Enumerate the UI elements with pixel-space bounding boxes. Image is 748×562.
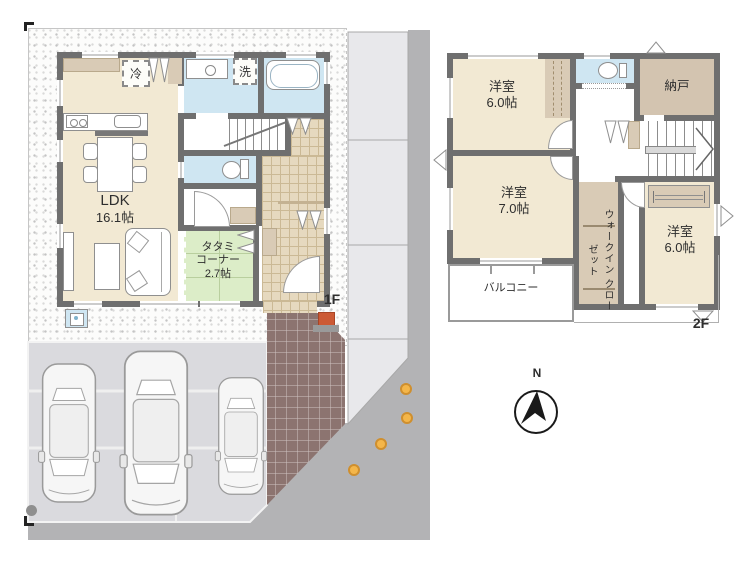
eave-outline	[718, 255, 719, 322]
sofa-pillow	[127, 231, 149, 253]
double-door-icon	[296, 210, 322, 230]
closet-se	[648, 185, 710, 208]
stove	[66, 115, 88, 128]
room-name: 洋室	[470, 79, 534, 95]
walk-in-closet-label: ウォークイン クローゼット	[575, 208, 615, 312]
vanity-sink	[186, 59, 228, 79]
dining-chair	[83, 166, 98, 183]
car-top-view	[119, 349, 193, 517]
window	[178, 162, 184, 178]
car-top-view	[213, 376, 269, 496]
corner-mark-nw2	[24, 22, 27, 31]
window	[57, 140, 63, 162]
genkan-step-edge	[278, 201, 324, 204]
stairs-railing	[645, 146, 701, 154]
window	[324, 208, 330, 234]
stairs-direction-arrow	[694, 126, 716, 172]
dining-chair	[83, 143, 98, 160]
dining-chair	[132, 166, 147, 183]
car-top-view	[38, 362, 100, 504]
sliding-door-opening	[582, 83, 626, 89]
dining-table	[97, 137, 133, 192]
room-name: コーナー	[185, 254, 251, 267]
vanity-bowl	[205, 65, 216, 76]
outdoor-faucet	[65, 309, 88, 328]
sofa-pillow	[126, 270, 148, 292]
refrigerator-label: 冷	[130, 65, 142, 82]
window-swing-icon	[720, 205, 734, 227]
bedroom-se-label: 洋室 6.0帖	[648, 224, 712, 256]
window	[196, 52, 234, 58]
tv-board	[63, 232, 74, 291]
bedroom-sw-label: 洋室 7.0帖	[482, 185, 546, 217]
pantry-niche	[168, 58, 182, 84]
kitchen-sink	[114, 115, 141, 128]
closet-nw	[545, 59, 570, 118]
closet-rod	[655, 195, 703, 196]
rod-bracket	[704, 191, 705, 203]
wall-segment	[258, 58, 264, 113]
window-swing-icon	[646, 41, 666, 54]
window	[324, 62, 330, 84]
room-name: LDK	[73, 192, 157, 210]
ground-light-dot	[375, 438, 387, 450]
toilet-bowl-2f	[598, 62, 618, 79]
corner-mark-sw2	[24, 523, 34, 526]
shoe-closet	[262, 228, 277, 256]
postbox-base	[313, 325, 339, 332]
ground-light-dot	[401, 412, 413, 424]
room-area: 2.7帖	[185, 268, 251, 281]
room-name: 洋室	[648, 224, 712, 240]
dining-chair	[132, 143, 147, 160]
room-area: 7.0帖	[482, 201, 546, 217]
boundary-dot	[26, 505, 37, 516]
coffee-table	[94, 243, 120, 290]
wall-segment	[634, 58, 640, 121]
window	[74, 301, 102, 307]
window	[286, 52, 316, 58]
bedroom-nw-label: 洋室 6.0帖	[470, 79, 534, 111]
porch-step	[263, 301, 317, 313]
balcony-label: バルコニー	[478, 282, 544, 295]
toilet-tank-2f	[619, 63, 627, 78]
window	[584, 53, 610, 59]
door-opening	[196, 113, 228, 119]
window	[200, 301, 240, 307]
ldk-label: LDK 16.1帖	[73, 192, 157, 226]
window-swing-icon	[433, 149, 447, 171]
window	[82, 52, 118, 58]
side-panel-strip	[348, 32, 408, 424]
counter-base	[95, 131, 148, 136]
double-door-icon	[148, 57, 170, 83]
burner	[79, 119, 87, 127]
sofa	[125, 228, 171, 296]
wall-segment	[618, 176, 624, 304]
room-name: 洋室	[482, 185, 546, 201]
balcony-tick	[533, 264, 535, 274]
wall-segment	[184, 183, 262, 189]
wall-segment	[184, 150, 291, 156]
bathtub-inner	[270, 64, 318, 88]
closet-rod	[655, 199, 703, 200]
postbox	[318, 312, 335, 326]
burner	[70, 119, 78, 127]
compass-rose	[505, 362, 569, 436]
closet-rod-line	[561, 61, 563, 116]
room-name: タタミ	[185, 241, 251, 254]
double-door-icon	[604, 120, 630, 144]
ground-light-dot	[400, 383, 412, 395]
window	[57, 80, 63, 106]
room-area: 6.0帖	[648, 240, 712, 256]
window	[447, 78, 453, 118]
bathtub	[266, 60, 320, 90]
floor-label-2f: 2F	[684, 315, 718, 332]
faucet-dot	[74, 316, 78, 320]
hall-storage	[230, 207, 256, 224]
floor-plan-canvas: 冷 洗	[0, 0, 748, 562]
room-area: 16.1帖	[73, 210, 157, 226]
toilet-tank-1f	[240, 159, 249, 179]
closet-rod-line	[553, 61, 555, 116]
door-opening	[644, 115, 664, 121]
wic-line: ウォークイン	[602, 209, 613, 275]
window	[468, 53, 538, 59]
toilet-bowl-1f	[222, 161, 241, 179]
window	[140, 301, 198, 307]
storeroom-label: 納戸	[652, 79, 702, 94]
balcony-tick	[490, 264, 492, 274]
window	[57, 224, 63, 248]
washer-label: 洗	[239, 63, 251, 80]
room-area: 6.0帖	[470, 95, 534, 111]
floor-label-1f: 1F	[318, 291, 346, 308]
ground-light-dot	[348, 464, 360, 476]
kitchen-cabinet	[63, 58, 120, 72]
sofa-back-line	[161, 232, 162, 292]
refrigerator-box: 冷	[122, 60, 150, 87]
window	[447, 188, 453, 230]
wall-segment	[324, 52, 330, 307]
compass-needle	[521, 391, 546, 424]
washer-box: 洗	[233, 58, 257, 85]
double-door-icon	[286, 117, 312, 135]
wall-segment	[256, 150, 262, 226]
tatami-label: タタミ コーナー 2.7帖	[185, 241, 251, 281]
rod-bracket	[653, 191, 654, 203]
